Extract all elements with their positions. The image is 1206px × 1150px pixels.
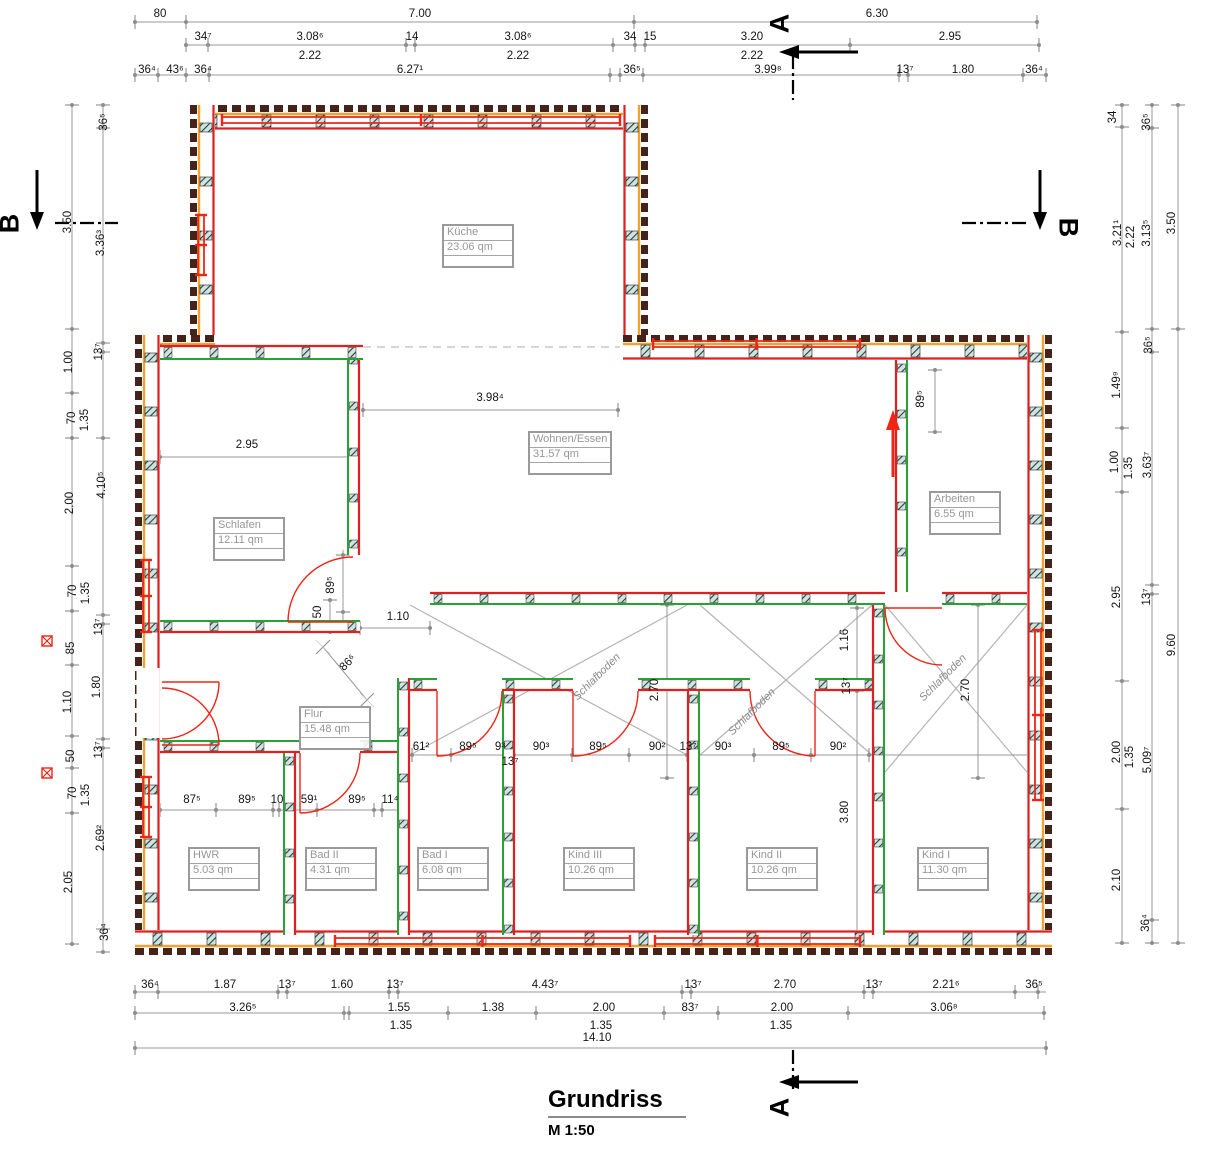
dim-label: 90³ <box>533 741 550 753</box>
dim-label: 36⁵ <box>98 113 110 131</box>
dim-label: 36⁴ <box>138 64 156 76</box>
dim-label: 2.70 <box>960 679 972 701</box>
dim-label: 1.35 <box>1123 457 1135 479</box>
page-title: Grundriss <box>548 1086 686 1114</box>
dim-label: 1.35 <box>80 784 92 806</box>
room-area: 4.31 qm <box>307 864 375 879</box>
drawing-scale: M 1:50 <box>548 1122 686 1139</box>
room-label-blank-row <box>190 879 258 889</box>
dim-label: 3.06⁸ <box>930 1002 957 1014</box>
dim-label: 13⁷ <box>93 344 105 361</box>
dim-label: 2.69² <box>95 825 107 851</box>
dim-label: 3.20 <box>741 31 763 43</box>
room-label-blank-row <box>307 879 375 889</box>
room-area: 5.03 qm <box>190 864 258 879</box>
room-name: HWR <box>190 849 258 864</box>
dim-label: 7.00 <box>409 8 431 20</box>
section-marker-b-left: B <box>0 214 25 234</box>
dim-label: 89⁵ <box>459 741 477 753</box>
room-label-bad-i: Bad I6.08 qm <box>417 847 489 891</box>
dim-label: 83⁷ <box>682 1002 699 1014</box>
floorplan-canvas: A A B B Grundriss M 1:50 807.006.3034⁷3.… <box>0 0 1206 1150</box>
dim-label: 50 <box>65 750 77 763</box>
dim-label: 3.26⁵ <box>229 1002 256 1014</box>
dim-label: 2.95 <box>1111 586 1123 608</box>
dim-label: 70 <box>67 585 79 598</box>
dim-label: 61² <box>413 741 430 753</box>
dim-label: 5.09⁷ <box>1142 747 1154 774</box>
dim-label: 14.10 <box>583 1032 612 1044</box>
title-underline <box>548 1116 686 1118</box>
dim-label: 36⁴ <box>1025 64 1043 76</box>
dim-label: 3.50 <box>1166 212 1178 234</box>
dim-label: 89⁵ <box>772 741 790 753</box>
dim-label: 1.38 <box>482 1002 504 1014</box>
dim-label: 6.30 <box>866 8 888 20</box>
dim-label: 1.10 <box>62 691 74 713</box>
dim-label: 1.35 <box>79 409 91 431</box>
dim-label: 1.60 <box>331 979 353 991</box>
dim-label: 89⁵ <box>238 794 256 806</box>
dim-label: 13⁷ <box>93 619 105 636</box>
dim-label: 1.16 <box>839 629 851 651</box>
dim-label: 36⁵ <box>1143 336 1155 354</box>
room-label-wohnen-essen: Wohnen/Essen31.57 qm <box>528 431 612 475</box>
dim-label: 3.21¹ <box>1112 220 1124 246</box>
room-area: 6.55 qm <box>931 508 999 523</box>
room-label-blank-row <box>565 879 633 889</box>
floorplan-drawing <box>0 0 1206 1150</box>
room-label-hwr: HWR5.03 qm <box>188 847 260 891</box>
dim-label: 36⁴ <box>194 64 212 76</box>
dim-label: 11⁴ <box>382 794 399 806</box>
dim-label: 2.70 <box>649 679 661 701</box>
dim-label: 80 <box>154 8 167 20</box>
dim-label: 4.10⁵ <box>96 471 108 498</box>
dim-label: 3.99⁸ <box>754 64 781 76</box>
dim-label: 90² <box>830 741 847 753</box>
room-name: Schlafen <box>215 519 283 534</box>
dim-label: 1.35 <box>770 1020 792 1032</box>
room-name: Arbeiten <box>931 493 999 508</box>
dim-label: 1.55 <box>388 1002 410 1014</box>
room-area: 6.08 qm <box>419 864 487 879</box>
room-label-k-che: Küche23.06 qm <box>442 224 514 268</box>
room-label-blank-row <box>301 738 369 748</box>
dim-label: 90² <box>649 741 666 753</box>
section-marker-a-bottom: A <box>764 1098 795 1118</box>
room-label-kind-i: Kind I11.30 qm <box>917 847 989 891</box>
room-label-blank-row <box>931 523 999 533</box>
dim-label: 1.49⁹ <box>1111 371 1123 398</box>
dim-label: 3.98⁴ <box>476 392 503 404</box>
room-label-blank-row <box>215 549 283 559</box>
room-area: 15.48 qm <box>301 723 369 738</box>
room-name: Wohnen/Essen <box>530 433 610 448</box>
dim-label: 1.00 <box>63 351 75 373</box>
dim-label: 36⁴ <box>99 923 111 941</box>
dim-label: 2.00 <box>1111 741 1123 763</box>
dim-label: 14 <box>406 31 419 43</box>
dim-label: 36⁵ <box>623 64 641 76</box>
section-marker-b-right: B <box>1052 218 1083 238</box>
dim-label: 1.80 <box>91 676 103 698</box>
room-area: 23.06 qm <box>444 241 512 256</box>
dim-label: 34 <box>624 31 637 43</box>
dim-label: 2.22 <box>507 50 529 62</box>
dim-label: 3.08⁶ <box>296 31 323 43</box>
dim-label: 59¹ <box>301 794 318 806</box>
dim-label: 13⁷ <box>866 979 883 991</box>
dim-label: 34⁷ <box>195 31 212 43</box>
annotations <box>42 347 900 778</box>
dim-label: 34 <box>1107 111 1119 124</box>
room-area: 11.30 qm <box>919 864 987 879</box>
room-area: 10.26 qm <box>748 864 816 879</box>
dim-label: 15 <box>644 31 657 43</box>
dim-label: 43⁶ <box>166 64 184 76</box>
dim-label: 13⁷ <box>279 979 296 991</box>
room-label-blank-row <box>419 879 487 889</box>
dim-label: 10 <box>271 794 284 806</box>
dim-label: 89⁵ <box>325 576 337 594</box>
room-label-blank-row <box>530 463 610 473</box>
dim-label: 13⁷ <box>685 979 702 991</box>
dim-label: 1.35 <box>80 582 92 604</box>
dim-label: 89⁵ <box>589 741 607 753</box>
room-label-kind-iii: Kind III10.26 qm <box>563 847 635 891</box>
dim-label: 2.95 <box>236 439 258 451</box>
dim-label: 1.35 <box>590 1020 612 1032</box>
dim-label: 2.22 <box>1125 226 1137 248</box>
dim-label: 9.60 <box>1166 634 1178 656</box>
dim-label: 3.08⁶ <box>504 31 531 43</box>
dim-label: 1.80 <box>952 64 974 76</box>
dim-label: 89⁵ <box>915 390 927 408</box>
room-area: 12.11 qm <box>215 534 283 549</box>
room-area: 31.57 qm <box>530 448 610 463</box>
dim-label: 50 <box>312 606 324 619</box>
dim-label: 3.63⁷ <box>1142 452 1154 479</box>
dim-label: 36⁵ <box>1025 979 1043 991</box>
dim-label: 13⁷ <box>93 742 105 759</box>
dim-label: 2.22 <box>299 50 321 62</box>
dim-label: 2.05 <box>63 871 75 893</box>
dim-label: 2.00 <box>593 1002 615 1014</box>
room-label-bad-ii: Bad II4.31 qm <box>305 847 377 891</box>
room-name: Bad II <box>307 849 375 864</box>
dim-label: 13⁷ <box>387 979 404 991</box>
dim-label: 2.70 <box>774 979 796 991</box>
dim-label: 36⁴ <box>141 979 159 991</box>
room-area: 10.26 qm <box>565 864 633 879</box>
dim-label: 9³ <box>495 741 505 753</box>
dim-label: 13⁷ <box>897 64 914 76</box>
dim-label: 3.50 <box>62 211 74 233</box>
dim-label: 3.80 <box>839 801 851 823</box>
dim-label: 70 <box>66 412 78 425</box>
dim-label: 1.10 <box>387 611 409 623</box>
room-name: Bad I <box>419 849 487 864</box>
room-label-kind-ii: Kind II10.26 qm <box>746 847 818 891</box>
room-name: Flur <box>301 708 369 723</box>
room-name: Kind II <box>748 849 816 864</box>
dim-label: 89⁵ <box>348 794 366 806</box>
room-name: Kind III <box>565 849 633 864</box>
dim-label: 3.36³ <box>95 230 107 256</box>
room-label-schlafen: Schlafen12.11 qm <box>213 517 285 561</box>
dim-label: 2.10 <box>1111 869 1123 891</box>
dim-label: 2.21⁶ <box>932 979 959 991</box>
dim-label: 2.00 <box>771 1002 793 1014</box>
room-label-flur: Flur15.48 qm <box>299 706 371 750</box>
dim-label: 1.35 <box>390 1020 412 1032</box>
dim-label: 2.00 <box>64 492 76 514</box>
dim-label: 87⁵ <box>183 794 201 806</box>
dim-label: 13⁷ <box>502 756 519 768</box>
dim-label: 4.43⁷ <box>532 979 559 991</box>
dim-label: 36⁵ <box>1141 113 1153 131</box>
room-name: Kind I <box>919 849 987 864</box>
dim-label: 85 <box>65 642 77 655</box>
dim-label: 1.35 <box>1124 746 1136 768</box>
room-label-blank-row <box>919 879 987 889</box>
dim-label: 13⁷ <box>841 678 853 695</box>
room-label-blank-row <box>748 879 816 889</box>
dim-label: 36⁴ <box>1140 914 1152 932</box>
dim-label: 3.13⁵ <box>1141 219 1153 246</box>
dim-label: 13⁷ <box>680 741 697 753</box>
dim-label: 70 <box>67 787 79 800</box>
dim-label: 6.27¹ <box>397 64 423 76</box>
dim-label: 1.00 <box>1109 451 1121 473</box>
room-name: Küche <box>444 226 512 241</box>
title-block: Grundriss M 1:50 <box>548 1086 686 1139</box>
section-marker-a-top: A <box>764 14 795 34</box>
dim-label: 13⁷ <box>1141 589 1153 606</box>
room-label-arbeiten: Arbeiten6.55 qm <box>929 491 1001 535</box>
room-label-blank-row <box>444 256 512 266</box>
dim-label: 2.95 <box>939 31 961 43</box>
dim-label: 2.22 <box>741 50 763 62</box>
dim-label: 1.87 <box>214 979 236 991</box>
dim-label: 90³ <box>715 741 732 753</box>
